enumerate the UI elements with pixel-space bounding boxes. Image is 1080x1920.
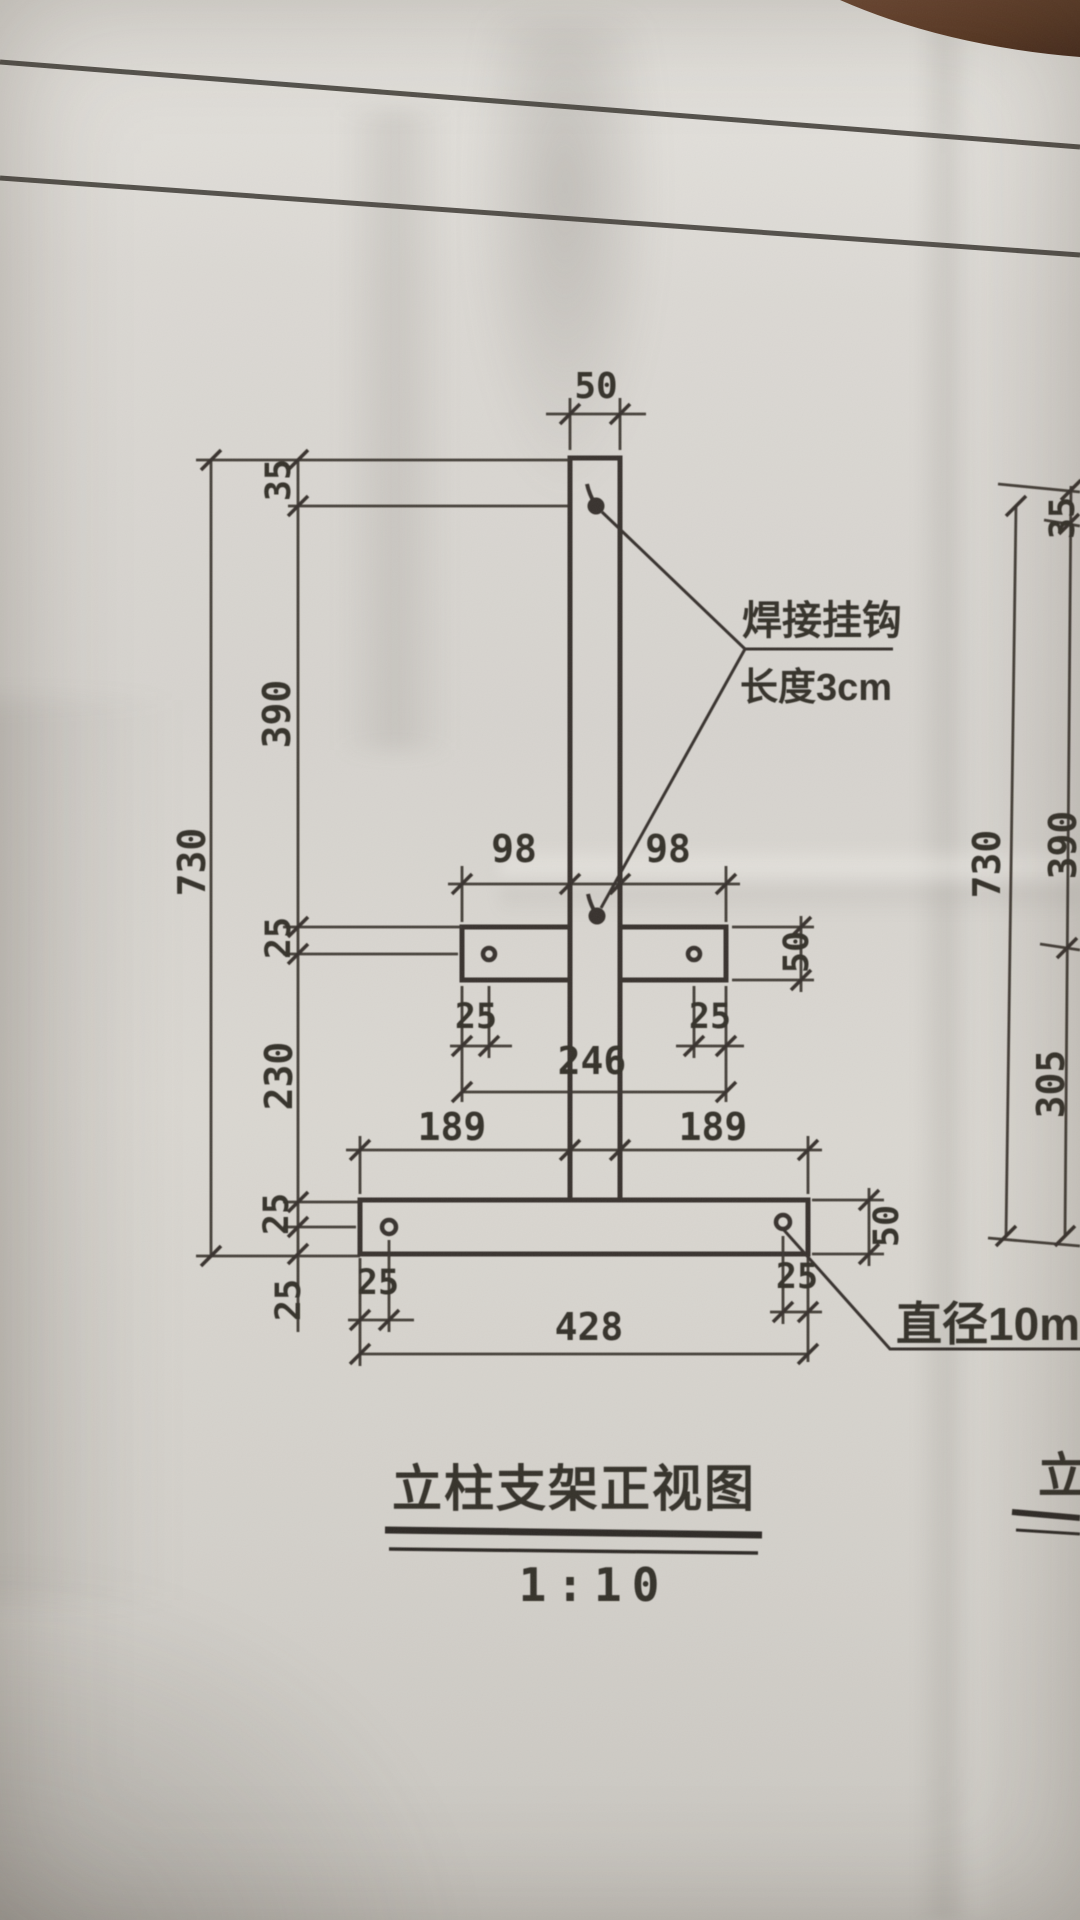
paper-grain-texture <box>0 0 1080 1920</box>
photo-of-technical-drawing: 50 730 35 390 25 230 25 25 98 98 25 25 2… <box>0 0 1080 1920</box>
drawing-svg: 50 730 35 390 25 230 25 25 98 98 25 25 2… <box>0 0 1080 1920</box>
